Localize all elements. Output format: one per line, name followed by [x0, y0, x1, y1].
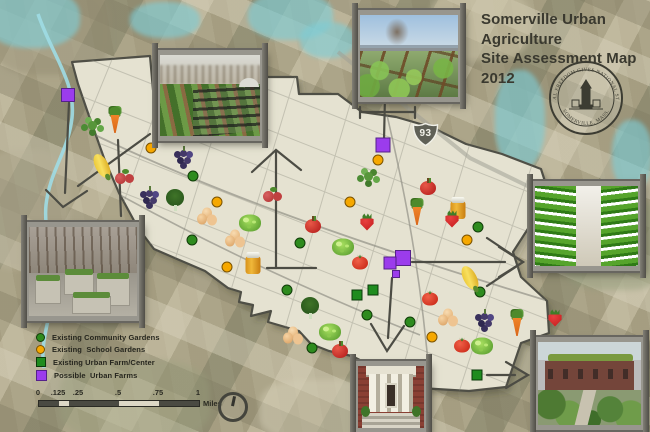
possible-urban-farm-marker	[384, 257, 397, 270]
legend-item-community-gardens: Existing Community Gardens	[36, 333, 160, 342]
raspberry-icon	[114, 169, 136, 185]
community-garden-swatch	[36, 333, 45, 342]
legend-label: Existing Community Gardens	[52, 333, 160, 342]
tomato-icon	[454, 338, 470, 353]
tomato-icon	[422, 291, 438, 306]
community-garden-marker	[295, 238, 306, 249]
possible-urban-farm-marker	[61, 88, 75, 102]
legend-item-urban-farm-center: Existing Urban Farm/Center	[36, 357, 160, 367]
compass-icon	[218, 392, 248, 422]
strawberry-icon	[548, 310, 563, 327]
eggs-icon	[196, 208, 218, 225]
school-garden-marker	[222, 262, 233, 273]
photo-concrete-planter-garden	[24, 222, 142, 321]
lettuce-icon	[471, 338, 493, 355]
scale-tick: .125	[51, 388, 66, 397]
photo-image	[160, 55, 260, 136]
kale-icon	[80, 115, 104, 135]
legend-item-possible-urban-farms: Possible Urban Farms	[36, 370, 160, 381]
photo-image	[535, 186, 638, 266]
photo-vertical-farm	[530, 181, 643, 271]
school-garden-swatch	[36, 345, 45, 354]
photo-city-hall-entrance	[353, 361, 429, 432]
kale-icon	[356, 166, 380, 186]
scale-tick: .75	[153, 388, 163, 397]
possible-urban-farm-marker	[376, 138, 391, 153]
legend-label: Existing School Gardens	[52, 345, 145, 354]
apple-icon	[420, 179, 436, 195]
urban-farm-center-marker	[352, 290, 363, 301]
somerville-city-seal: MUNICIPAL FREEDOM GIVES NATIONAL STRENGT…	[547, 59, 625, 137]
community-garden-marker	[282, 285, 293, 296]
legend-label: Existing Urban Farm/Center	[53, 358, 155, 367]
community-garden-marker	[362, 310, 373, 321]
apple-icon	[305, 217, 321, 233]
school-garden-marker	[212, 197, 223, 208]
corn-icon	[90, 151, 114, 180]
corn-icon	[458, 263, 482, 292]
scale-bar: 0 .125 .25 .5 .75 1 Miles	[0, 388, 260, 428]
school-garden-marker	[462, 235, 473, 246]
grapes-icon	[140, 186, 158, 208]
grapes-icon	[475, 309, 493, 331]
carrot-icon	[411, 199, 424, 225]
community-garden-marker	[307, 343, 318, 354]
carrot-icon	[511, 310, 524, 336]
photo-image	[538, 342, 641, 425]
possible-urban-farm-swatch	[36, 370, 47, 381]
grapes-icon	[174, 146, 192, 168]
strawberry-icon	[360, 214, 375, 231]
photo-raised-bed-garden	[355, 10, 463, 102]
scale-tick: .5	[115, 388, 121, 397]
urban-farm-center-marker	[368, 285, 379, 296]
photo-green-roof-building	[533, 337, 646, 430]
possible-urban-farm-marker	[392, 270, 400, 278]
eggs-icon	[224, 230, 246, 247]
community-garden-marker	[473, 222, 484, 233]
legend: Existing Community Gardens Existing Scho…	[36, 333, 160, 384]
photo-image	[358, 366, 424, 428]
urban-farm-center-marker	[472, 370, 483, 381]
map-poster: 93	[0, 0, 650, 432]
scale-tick: .25	[73, 388, 83, 397]
honey-icon	[246, 252, 261, 274]
school-garden-marker	[373, 155, 384, 166]
possible-urban-farm-marker	[395, 250, 411, 266]
photo-community-garden-rows	[155, 50, 265, 141]
collard-icon	[166, 189, 184, 211]
collard-icon	[301, 297, 319, 319]
title-line-1: Somerville Urban Agriculture	[481, 10, 650, 49]
lettuce-icon	[332, 239, 354, 256]
carrot-icon	[109, 107, 122, 133]
eggs-icon	[282, 327, 304, 344]
tomato-icon	[352, 255, 368, 270]
community-garden-marker	[405, 317, 416, 328]
legend-item-school-gardens: Existing School Gardens	[36, 345, 160, 354]
raspberry-icon	[262, 187, 284, 203]
apple-icon	[332, 342, 348, 358]
photo-image	[360, 15, 458, 97]
community-garden-marker	[188, 171, 199, 182]
compass-needle	[231, 396, 236, 406]
school-garden-marker	[345, 197, 356, 208]
lettuce-icon	[319, 324, 341, 341]
urban-farm-swatch	[36, 357, 46, 367]
school-garden-marker	[427, 332, 438, 343]
legend-label: Possible Urban Farms	[54, 371, 137, 380]
scale-tick: 1	[196, 388, 200, 397]
community-garden-marker	[187, 235, 198, 246]
strawberry-icon	[445, 211, 460, 228]
eggs-icon	[437, 309, 459, 326]
scale-bar-segments	[38, 400, 200, 407]
scale-tick: 0	[36, 388, 40, 397]
photo-image	[29, 227, 137, 316]
